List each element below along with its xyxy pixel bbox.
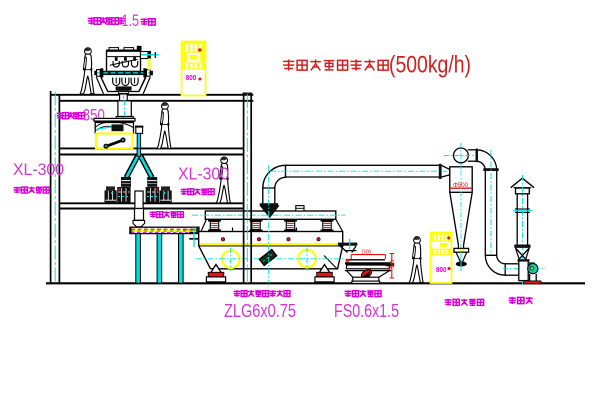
svg-text:1.5: 1.5 bbox=[122, 12, 140, 30]
svg-text:(500kg/h): (500kg/h) bbox=[389, 52, 471, 79]
svg-text:800: 800 bbox=[186, 75, 197, 82]
svg-text:800: 800 bbox=[436, 267, 447, 274]
svg-text:545: 545 bbox=[390, 259, 396, 268]
svg-text:XL-300: XL-300 bbox=[178, 163, 229, 183]
svg-text:XL-300: XL-300 bbox=[13, 161, 64, 179]
svg-text:FS0.6x1.5: FS0.6x1.5 bbox=[334, 301, 399, 321]
svg-text:ZLG6x0.75: ZLG6x0.75 bbox=[224, 301, 296, 321]
svg-text:1500: 1500 bbox=[361, 249, 371, 255]
